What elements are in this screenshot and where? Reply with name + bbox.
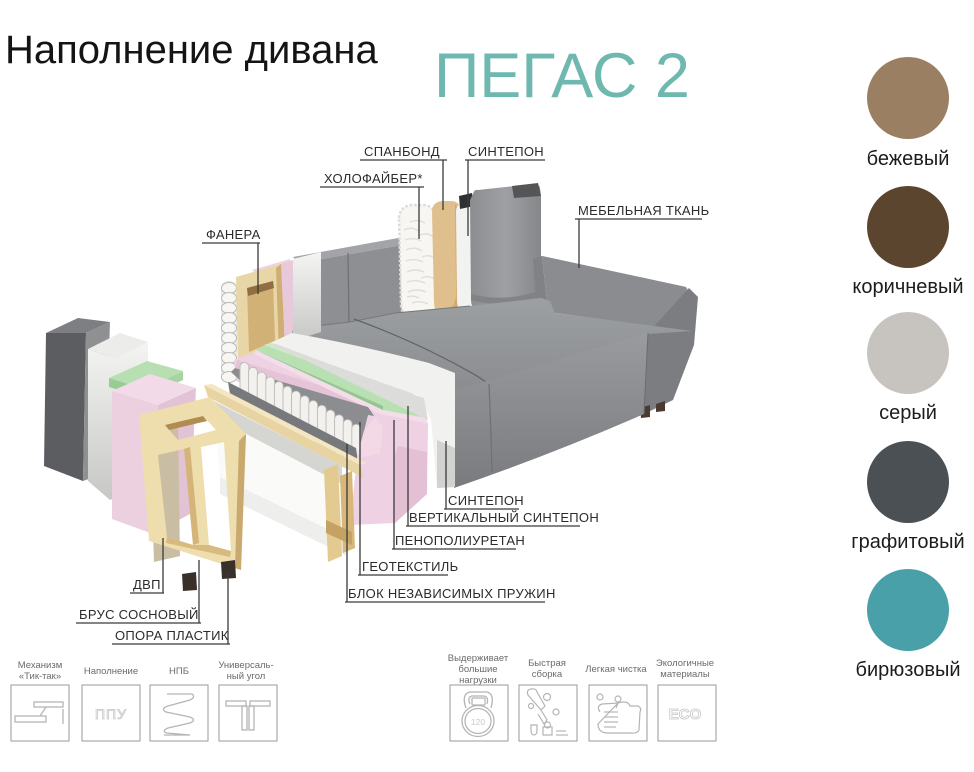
svg-text:Выдерживает: Выдерживает bbox=[448, 653, 509, 664]
svg-text:Быстрая: Быстрая bbox=[528, 658, 566, 669]
svg-text:ВЕРТИКАЛЬНЫЙ СИНТЕПОН: ВЕРТИКАЛЬНЫЙ СИНТЕПОН bbox=[409, 510, 599, 525]
svg-text:серый: серый bbox=[879, 402, 937, 424]
svg-text:Механизм: Механизм bbox=[18, 660, 62, 671]
svg-text:Экологичные: Экологичные bbox=[656, 658, 714, 669]
svg-text:«Тик-так»: «Тик-так» bbox=[19, 671, 61, 682]
svg-text:материалы: материалы bbox=[660, 669, 710, 680]
svg-text:СПАНБОНД: СПАНБОНД bbox=[364, 144, 440, 159]
svg-text:Универсаль-: Универсаль- bbox=[218, 660, 273, 671]
svg-text:ДВП: ДВП bbox=[133, 577, 161, 592]
svg-text:БЛОК НЕЗАВИСИМЫХ ПРУЖИН: БЛОК НЕЗАВИСИМЫХ ПРУЖИН bbox=[348, 586, 556, 601]
svg-text:120: 120 bbox=[471, 717, 485, 727]
svg-text:МЕБЕЛЬНАЯ ТКАНЬ: МЕБЕЛЬНАЯ ТКАНЬ bbox=[578, 203, 709, 218]
svg-text:нагрузки: нагрузки bbox=[459, 675, 497, 686]
svg-text:ППУ: ППУ bbox=[95, 706, 127, 722]
svg-text:ГЕОТЕКСТИЛЬ: ГЕОТЕКСТИЛЬ bbox=[362, 559, 458, 574]
svg-text:ХОЛОФАЙБЕР*: ХОЛОФАЙБЕР* bbox=[324, 171, 423, 186]
svg-text:ный угол: ный угол bbox=[227, 671, 266, 682]
svg-text:ECO: ECO bbox=[669, 706, 702, 723]
svg-text:ПЕГАС 2: ПЕГАС 2 bbox=[434, 41, 690, 111]
svg-text:Наполнение дивана: Наполнение дивана bbox=[5, 28, 378, 72]
svg-text:графитовый: графитовый bbox=[851, 531, 964, 553]
svg-text:НПБ: НПБ bbox=[169, 666, 189, 677]
svg-text:СИНТЕПОН: СИНТЕПОН bbox=[448, 493, 524, 508]
svg-text:большие: большие bbox=[458, 664, 497, 675]
svg-text:ОПОРА ПЛАСТИК: ОПОРА ПЛАСТИК bbox=[115, 628, 229, 643]
svg-text:ФАНЕРА: ФАНЕРА bbox=[206, 227, 261, 242]
svg-text:СИНТЕПОН: СИНТЕПОН bbox=[468, 144, 544, 159]
svg-text:БРУС СОСНОВЫЙ: БРУС СОСНОВЫЙ bbox=[79, 607, 199, 622]
svg-text:Наполнение: Наполнение bbox=[84, 666, 138, 677]
svg-text:бежевый: бежевый bbox=[867, 148, 950, 170]
svg-text:Легкая чистка: Легкая чистка bbox=[585, 664, 647, 675]
svg-text:бирюзовый: бирюзовый bbox=[856, 659, 961, 681]
svg-text:ПЕНОПОЛИУРЕТАН: ПЕНОПОЛИУРЕТАН bbox=[395, 533, 525, 548]
svg-text:сборка: сборка bbox=[532, 669, 563, 680]
svg-text:коричневый: коричневый bbox=[852, 276, 963, 298]
